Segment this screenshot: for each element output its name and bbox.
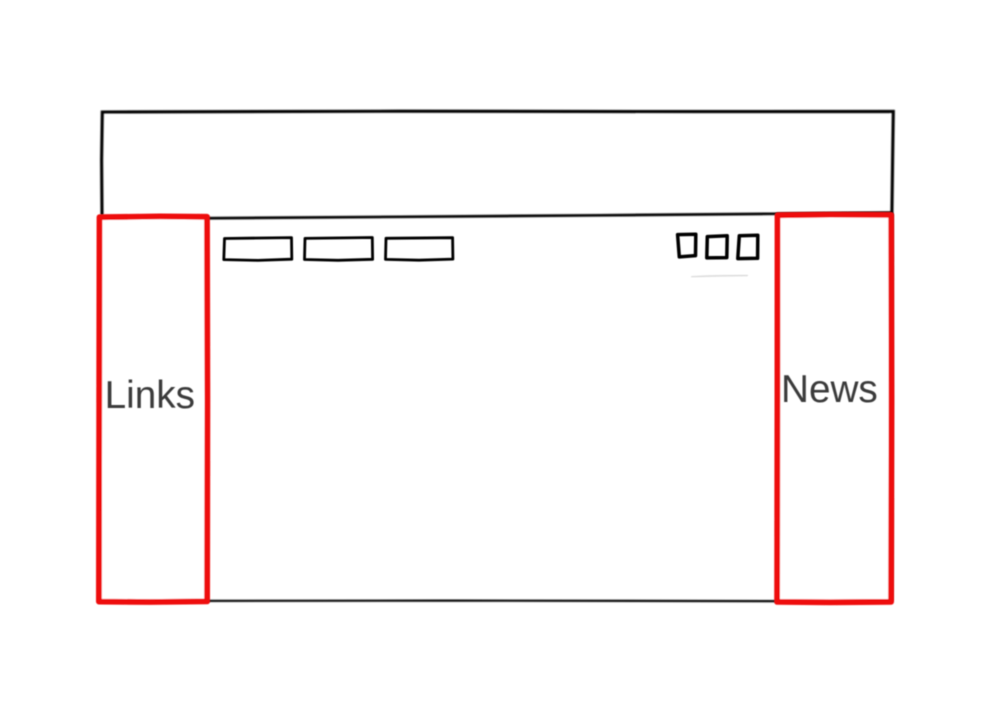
svg-text:Links: Links [105, 374, 195, 417]
svg-text:News: News [781, 368, 878, 411]
